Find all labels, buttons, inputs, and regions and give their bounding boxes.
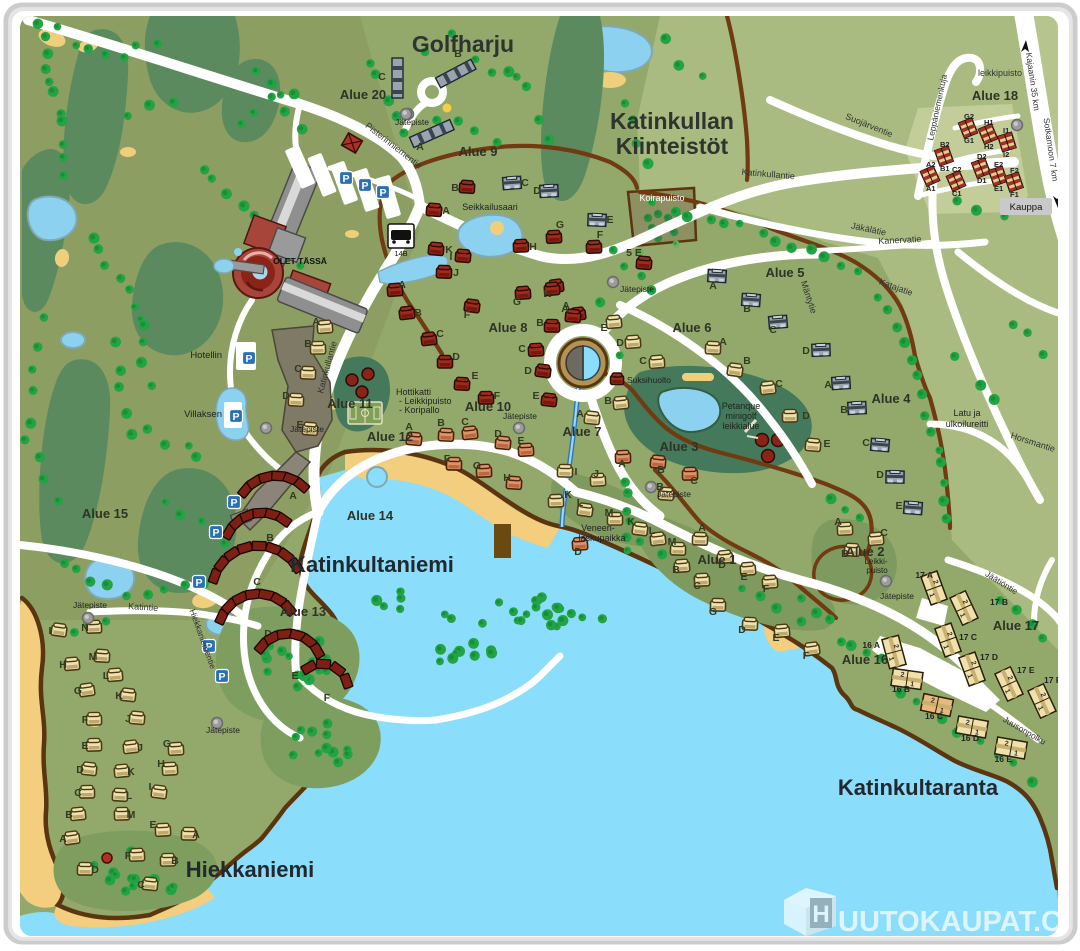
svg-text:H: H: [812, 901, 829, 928]
svg-text:Alue 5: Alue 5: [765, 265, 804, 280]
svg-text:A: A: [398, 279, 406, 291]
svg-text:OLET TÄSSÄ: OLET TÄSSÄ: [273, 256, 327, 266]
svg-text:P: P: [195, 577, 202, 589]
svg-text:C: C: [639, 355, 647, 367]
svg-text:K: K: [564, 489, 572, 501]
svg-text:H: H: [157, 758, 165, 770]
svg-text:P: P: [361, 180, 368, 192]
svg-text:- Koripallo: - Koripallo: [399, 405, 440, 415]
svg-text:G: G: [513, 296, 521, 308]
svg-text:C: C: [880, 527, 888, 539]
svg-text:Jätepiste: Jätepiste: [395, 117, 429, 127]
svg-text:UUTOKAUPAT.COM: UUTOKAUPAT.COM: [838, 906, 1080, 938]
svg-text:A: A: [442, 205, 450, 217]
svg-text:I2: I2: [1003, 150, 1009, 159]
svg-text:E: E: [740, 571, 747, 583]
svg-text:Jätepiste: Jätepiste: [290, 424, 324, 434]
svg-text:B: B: [604, 395, 612, 407]
svg-text:D: D: [76, 764, 84, 776]
svg-text:D: D: [452, 351, 460, 363]
svg-text:Katinkullan: Katinkullan: [610, 108, 734, 134]
svg-text:Alue 15: Alue 15: [82, 506, 128, 521]
svg-text:Jätepiste: Jätepiste: [657, 489, 691, 499]
svg-text:B: B: [657, 464, 665, 476]
svg-text:G: G: [709, 606, 717, 618]
svg-text:16 D: 16 D: [961, 733, 979, 743]
svg-text:I: I: [450, 251, 453, 263]
svg-text:M: M: [668, 536, 677, 548]
svg-text:I: I: [575, 466, 578, 478]
svg-text:Alue 14: Alue 14: [347, 508, 394, 523]
svg-text:P: P: [212, 527, 219, 539]
svg-text:Veneen-: Veneen-: [581, 523, 615, 533]
svg-text:leikkipuisto: leikkipuisto: [978, 68, 1022, 78]
svg-text:H1: H1: [984, 118, 994, 127]
svg-text:Alue 10: Alue 10: [465, 399, 511, 414]
svg-text:Petanque: Petanque: [722, 401, 761, 411]
svg-text:E2: E2: [994, 160, 1003, 169]
svg-text:F: F: [803, 650, 810, 662]
svg-text:17 D: 17 D: [980, 652, 998, 662]
svg-text:B: B: [65, 809, 73, 821]
svg-text:A1: A1: [926, 184, 936, 193]
svg-text:17 C: 17 C: [959, 632, 977, 642]
svg-text:D: D: [91, 864, 99, 876]
svg-text:D: D: [524, 365, 532, 377]
svg-text:L: L: [126, 790, 133, 802]
svg-text:I: I: [149, 781, 152, 793]
svg-text:A: A: [618, 458, 626, 470]
svg-text:B: B: [171, 855, 179, 867]
svg-text:B: B: [437, 417, 445, 429]
svg-text:A: A: [59, 833, 67, 845]
svg-text:Katinkultaranta: Katinkultaranta: [838, 775, 999, 800]
svg-text:G: G: [74, 685, 82, 697]
svg-text:D: D: [282, 390, 290, 402]
svg-text:D: D: [574, 546, 582, 558]
svg-text:H: H: [529, 241, 537, 253]
svg-text:H: H: [503, 472, 511, 484]
svg-text:J: J: [125, 713, 131, 725]
svg-text:A: A: [192, 829, 200, 841]
svg-text:5 E: 5 E: [626, 247, 642, 259]
svg-text:A: A: [416, 141, 424, 153]
svg-text:Alue 20: Alue 20: [340, 87, 386, 102]
svg-text:Seikkailusaari: Seikkailusaari: [462, 202, 518, 212]
svg-text:F1: F1: [1010, 190, 1019, 199]
svg-text:P: P: [245, 353, 252, 365]
svg-text:C: C: [378, 71, 386, 83]
svg-text:B2: B2: [940, 140, 950, 149]
svg-text:D: D: [876, 469, 884, 481]
svg-text:B: B: [743, 303, 751, 315]
svg-text:16 B: 16 B: [892, 684, 910, 694]
svg-text:C: C: [518, 343, 526, 355]
svg-text:G: G: [556, 219, 564, 231]
svg-text:G2: G2: [964, 112, 974, 121]
svg-text:F: F: [597, 229, 604, 241]
svg-text:B: B: [304, 338, 312, 350]
svg-text:Hiekkaniemi: Hiekkaniemi: [186, 857, 314, 882]
svg-text:A: A: [719, 336, 727, 348]
svg-text:K: K: [115, 690, 123, 702]
svg-text:C: C: [137, 879, 145, 891]
svg-text:Alue 18: Alue 18: [972, 88, 1018, 103]
svg-text:14B: 14B: [394, 249, 407, 258]
svg-text:Alue 2: Alue 2: [845, 544, 884, 559]
svg-text:J: J: [593, 468, 599, 480]
svg-text:G1: G1: [964, 136, 974, 145]
svg-text:D: D: [616, 337, 624, 349]
svg-text:E: E: [823, 438, 830, 450]
svg-text:Alue 17: Alue 17: [993, 618, 1039, 633]
svg-text:M: M: [127, 809, 136, 821]
svg-text:B1: B1: [940, 164, 950, 173]
svg-text:K: K: [127, 766, 135, 778]
svg-text:Golfharju: Golfharju: [412, 31, 514, 57]
svg-text:E: E: [517, 435, 524, 447]
svg-text:A2: A2: [926, 160, 936, 169]
svg-text:B: B: [672, 564, 680, 576]
svg-text:P: P: [218, 671, 225, 683]
svg-text:C: C: [769, 324, 777, 336]
svg-text:E: E: [772, 632, 779, 644]
svg-text:Alue 11: Alue 11: [327, 396, 373, 411]
svg-text:H2: H2: [984, 142, 994, 151]
svg-text:E: E: [81, 740, 88, 752]
svg-text:I: I: [49, 625, 52, 637]
svg-text:C: C: [775, 378, 783, 390]
svg-text:E: E: [149, 819, 156, 831]
svg-text:E: E: [471, 370, 478, 382]
svg-text:E: E: [606, 214, 613, 226]
svg-text:D: D: [533, 185, 541, 197]
svg-text:C: C: [693, 580, 701, 592]
svg-text:Alue 4: Alue 4: [871, 391, 911, 406]
svg-text:B: B: [414, 307, 422, 319]
svg-text:laskupaikka: laskupaikka: [578, 533, 625, 543]
svg-text:16 A: 16 A: [862, 640, 880, 650]
svg-text:M: M: [605, 507, 614, 519]
svg-text:P: P: [230, 497, 237, 509]
svg-text:J: J: [453, 267, 459, 279]
svg-text:B: B: [451, 182, 459, 194]
svg-text:Jätepiste: Jätepiste: [206, 725, 240, 735]
svg-text:D: D: [802, 410, 810, 422]
svg-text:C: C: [690, 475, 698, 487]
svg-text:Katintie: Katintie: [128, 601, 159, 613]
svg-text:A: A: [824, 379, 832, 391]
svg-text:F: F: [464, 309, 471, 321]
svg-text:P: P: [342, 173, 349, 185]
svg-text:H: H: [59, 659, 67, 671]
svg-text:C: C: [436, 328, 444, 340]
svg-text:C: C: [461, 416, 469, 428]
svg-text:Alue 9: Alue 9: [458, 144, 497, 159]
svg-text:F: F: [82, 714, 89, 726]
svg-text:A: A: [709, 280, 717, 292]
svg-text:Alue 6: Alue 6: [672, 320, 711, 335]
svg-text:M: M: [89, 651, 98, 663]
svg-text:A: A: [576, 408, 584, 420]
svg-text:B: B: [536, 317, 544, 329]
svg-text:C: C: [294, 363, 302, 375]
svg-text:C: C: [521, 177, 529, 189]
svg-text:F: F: [444, 453, 451, 465]
svg-text:P: P: [379, 187, 386, 199]
svg-text:G: G: [163, 738, 171, 750]
svg-text:Alue 7: Alue 7: [562, 424, 601, 439]
svg-text:E: E: [600, 322, 607, 334]
svg-text:F: F: [125, 850, 132, 862]
svg-text:L: L: [103, 670, 110, 682]
svg-text:G: G: [473, 460, 481, 472]
svg-text:B: B: [743, 355, 751, 367]
svg-text:C: C: [74, 787, 82, 799]
svg-text:leikkialue: leikkialue: [722, 421, 759, 431]
svg-text:Katinkultaniemi: Katinkultaniemi: [290, 552, 454, 577]
svg-text:F2: F2: [1010, 166, 1019, 175]
svg-text:Alue 16: Alue 16: [842, 652, 888, 667]
svg-text:Koirapuisto: Koirapuisto: [639, 193, 684, 203]
svg-text:minigolf: minigolf: [725, 411, 757, 421]
svg-text:Alue 1: Alue 1: [697, 552, 736, 567]
svg-text:F: F: [763, 583, 770, 595]
svg-text:Kauppa: Kauppa: [1010, 202, 1043, 213]
svg-text:D: D: [802, 345, 810, 357]
svg-text:K: K: [627, 516, 635, 528]
svg-text:puisto: puisto: [866, 566, 888, 575]
svg-text:A: A: [289, 490, 297, 502]
svg-text:Jätepiste: Jätepiste: [620, 284, 654, 294]
svg-text:P: P: [232, 411, 239, 423]
svg-text:16 C: 16 C: [925, 711, 943, 721]
svg-text:E: E: [895, 500, 902, 512]
svg-text:L: L: [649, 525, 656, 537]
svg-text:17 A: 17 A: [915, 570, 933, 580]
svg-text:E: E: [291, 670, 298, 682]
svg-text:Alue 8: Alue 8: [488, 320, 527, 335]
svg-text:Alue 13: Alue 13: [280, 604, 326, 619]
svg-text:16 E: 16 E: [995, 754, 1013, 764]
svg-text:A: A: [561, 303, 569, 315]
svg-text:Latu ja: Latu ja: [953, 408, 980, 418]
svg-text:E: E: [532, 390, 539, 402]
svg-text:Suksihuolto: Suksihuolto: [627, 375, 671, 385]
svg-text:H: H: [543, 288, 551, 300]
svg-text:J: J: [137, 742, 143, 754]
svg-text:F: F: [324, 692, 331, 704]
svg-text:D2: D2: [977, 152, 987, 161]
svg-text:C1: C1: [952, 189, 962, 198]
svg-text:Kiinteistöt: Kiinteistöt: [616, 133, 729, 159]
svg-text:D1: D1: [977, 176, 987, 185]
svg-text:L: L: [577, 497, 584, 509]
svg-text:E1: E1: [994, 184, 1003, 193]
svg-text:B: B: [840, 404, 848, 416]
svg-text:A: A: [312, 316, 320, 328]
svg-text:Jätepiste: Jätepiste: [880, 591, 914, 601]
svg-text:D: D: [494, 428, 502, 440]
svg-text:Jätepiste: Jätepiste: [73, 600, 107, 610]
svg-text:17 B: 17 B: [990, 597, 1008, 607]
svg-text:Alue 12: Alue 12: [367, 429, 413, 444]
svg-text:C2: C2: [952, 165, 962, 174]
svg-text:17 E: 17 E: [1017, 665, 1035, 675]
svg-text:Alue 3: Alue 3: [659, 439, 698, 454]
svg-text:Villaksen: Villaksen: [184, 409, 222, 420]
svg-text:D: D: [738, 624, 746, 636]
svg-text:Hotellin: Hotellin: [190, 350, 222, 361]
svg-text:A: A: [698, 522, 706, 534]
svg-text:ulkoilureitti: ulkoilureitti: [946, 419, 989, 429]
svg-text:C: C: [862, 437, 870, 449]
svg-text:A: A: [834, 516, 842, 528]
svg-text:C: C: [253, 576, 261, 588]
svg-text:I1: I1: [1003, 126, 1009, 135]
